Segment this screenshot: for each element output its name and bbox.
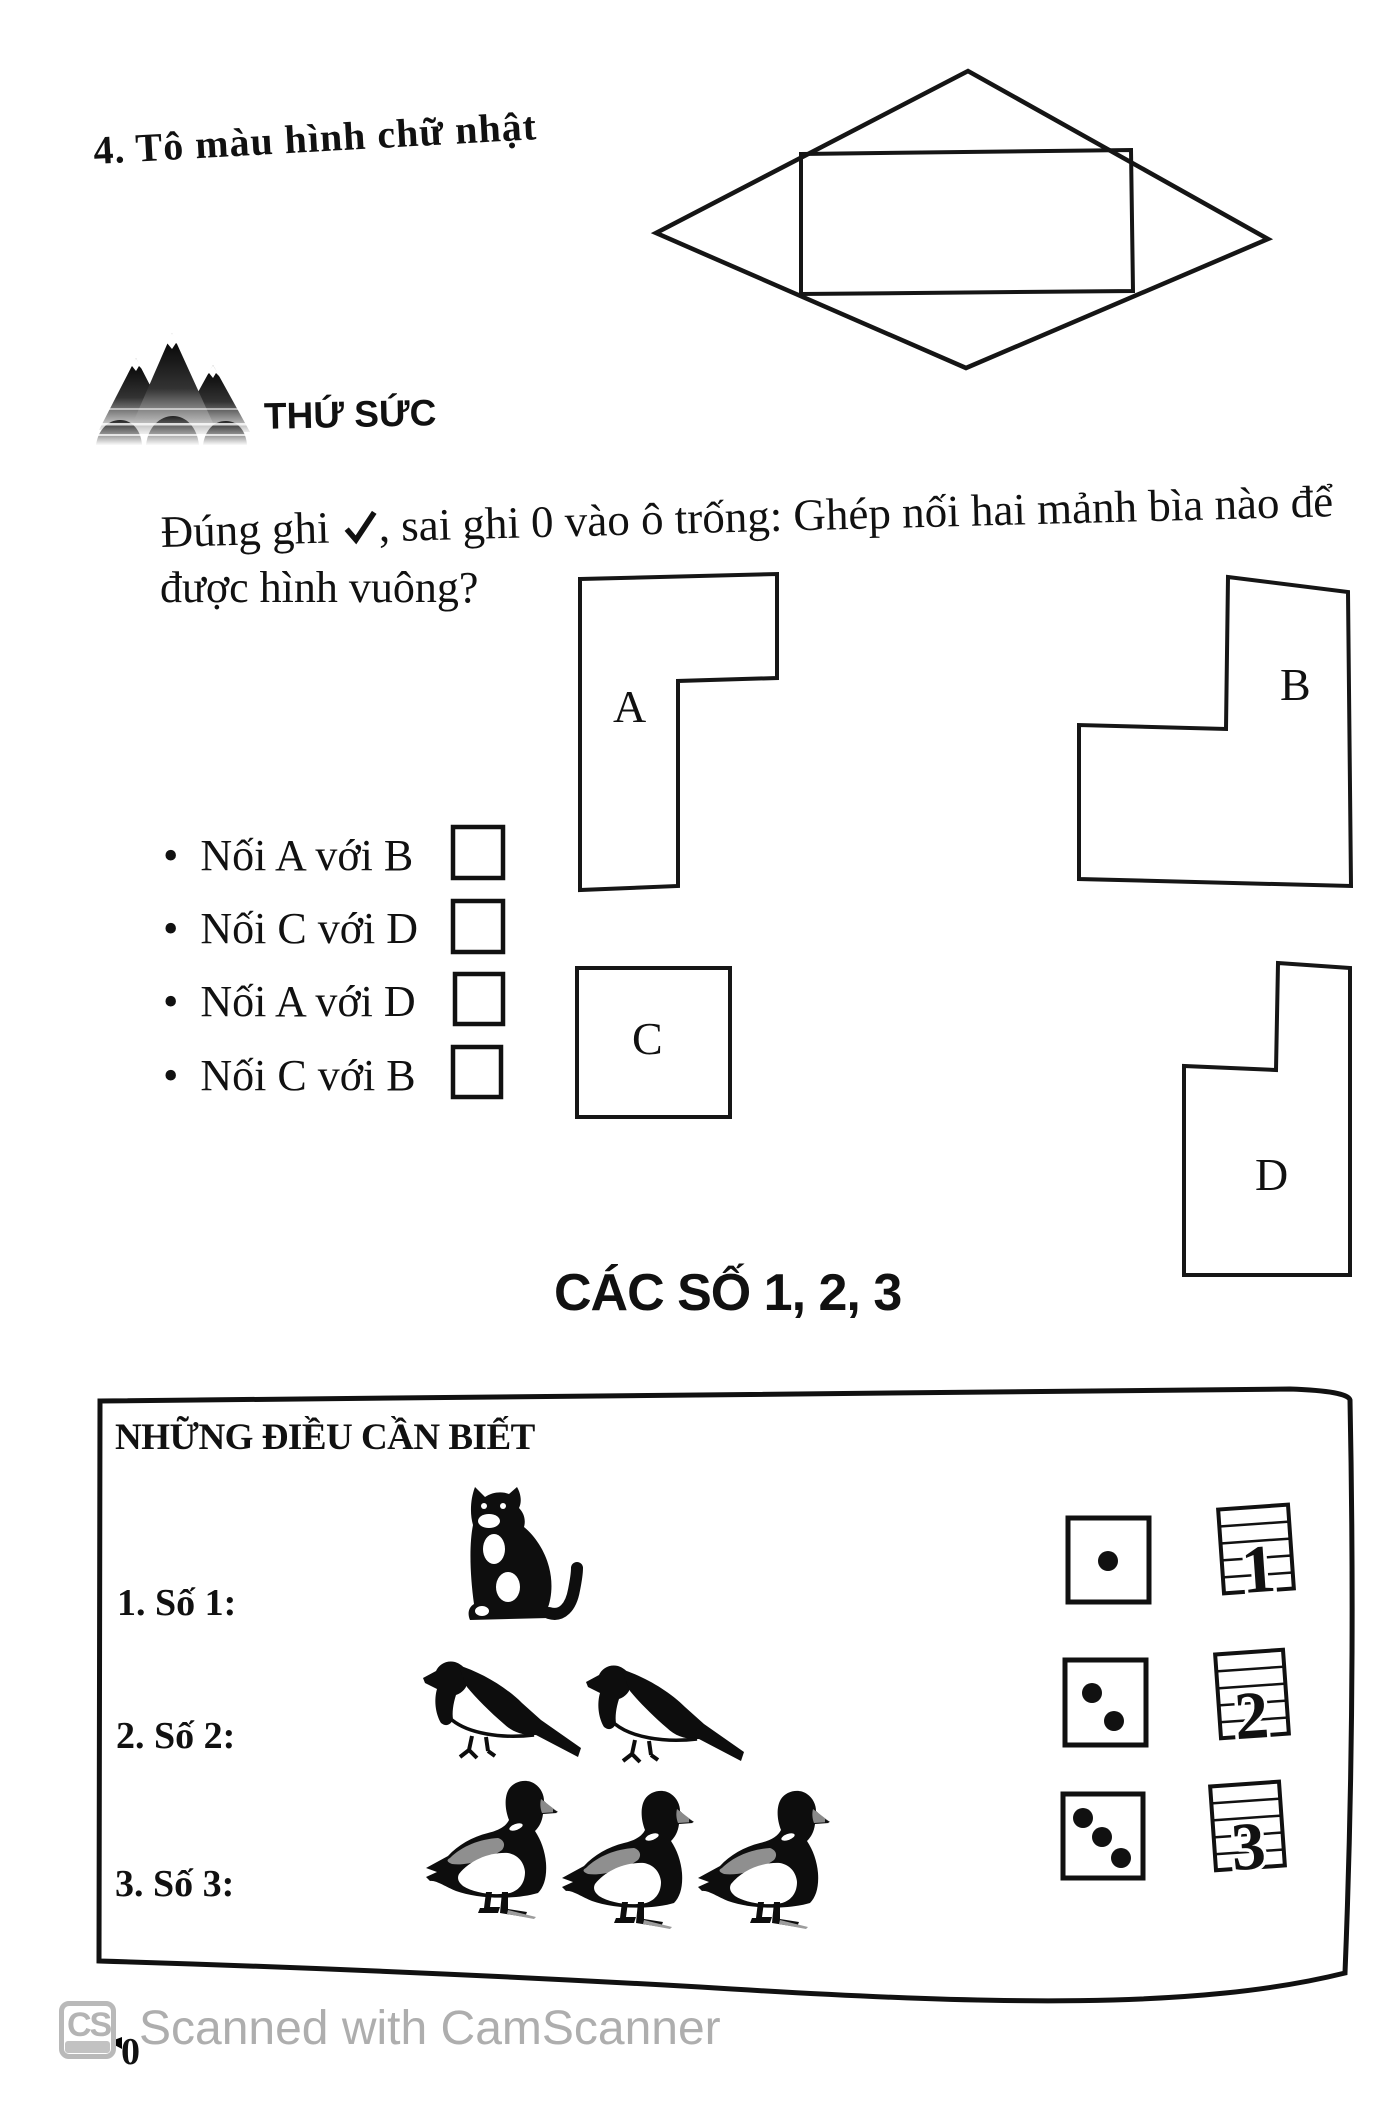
svg-text:2: 2 (1232, 1676, 1271, 1754)
svg-text:D: D (1255, 1149, 1288, 1200)
svg-text:1: 1 (1239, 1530, 1278, 1608)
svg-text:3: 3 (1229, 1807, 1268, 1885)
svg-text:C: C (632, 1013, 663, 1064)
svg-text:B: B (1280, 659, 1311, 710)
svg-text:A: A (613, 681, 646, 732)
